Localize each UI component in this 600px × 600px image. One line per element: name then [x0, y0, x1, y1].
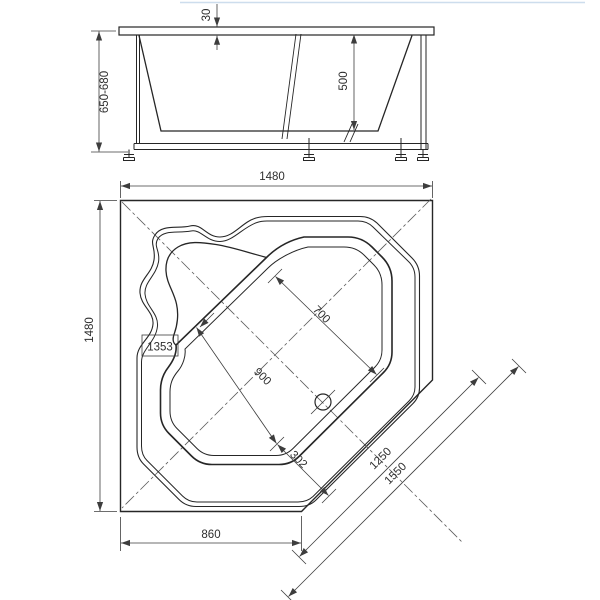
drawing-svg: 30 650-680 500	[0, 0, 600, 600]
front-rim-band	[119, 27, 434, 35]
foot-right-outer	[418, 150, 429, 161]
dim-front-overall-label: 1550	[383, 461, 410, 488]
dim-drain-offset-label: 302	[287, 449, 309, 471]
plan-basin-edge	[161, 237, 393, 465]
dim-overall-width-label: 1480	[259, 171, 285, 183]
dim-overall-height-label: 650-680	[99, 71, 111, 113]
front-left-panel	[137, 35, 140, 144]
dim-basin-depth: 500	[338, 35, 354, 131]
dim-basin-length-label: 900	[251, 366, 273, 388]
dim-front-edge-label: 1250	[368, 446, 395, 473]
plan-view: 1480 1480 1353 700 900	[84, 171, 526, 600]
front-bowl-outline	[139, 36, 412, 132]
foot-left	[124, 150, 135, 161]
dim-overall-depth: 1480	[84, 201, 117, 512]
dim-overall-width: 1480	[121, 171, 433, 198]
front-right-panel	[421, 35, 426, 150]
dim-side-cut: 860	[121, 516, 302, 551]
bathtub-technical-drawing: 30 650-680 500	[0, 0, 600, 600]
front-corner-wall-marks	[344, 124, 358, 142]
dim-front-edge: 1250	[292, 370, 486, 564]
dim-drain-offset: 302	[278, 445, 337, 504]
plan-basin-floor	[170, 247, 382, 456]
plan-centerline-main	[122, 202, 463, 543]
dim-overall-depth-label: 1480	[84, 317, 96, 343]
front-corner-wall-lines	[282, 34, 301, 139]
dim-basin-depth-label: 500	[338, 71, 350, 90]
dim-rim-thickness-label: 30	[201, 9, 213, 22]
front-view: 30 650-680 500	[91, 4, 434, 161]
dim-corner-diagonal-label: 1353	[147, 342, 173, 354]
dim-side-cut-label: 860	[201, 529, 220, 541]
dim-basin-width: 700	[268, 269, 384, 382]
dim-basin-width-label: 700	[310, 304, 332, 326]
dim-overall-height: 650-680	[91, 31, 128, 152]
plan-headrest-curve	[166, 243, 267, 345]
front-bottom-frame	[134, 144, 428, 150]
dim-front-overall: 1550	[281, 359, 526, 600]
